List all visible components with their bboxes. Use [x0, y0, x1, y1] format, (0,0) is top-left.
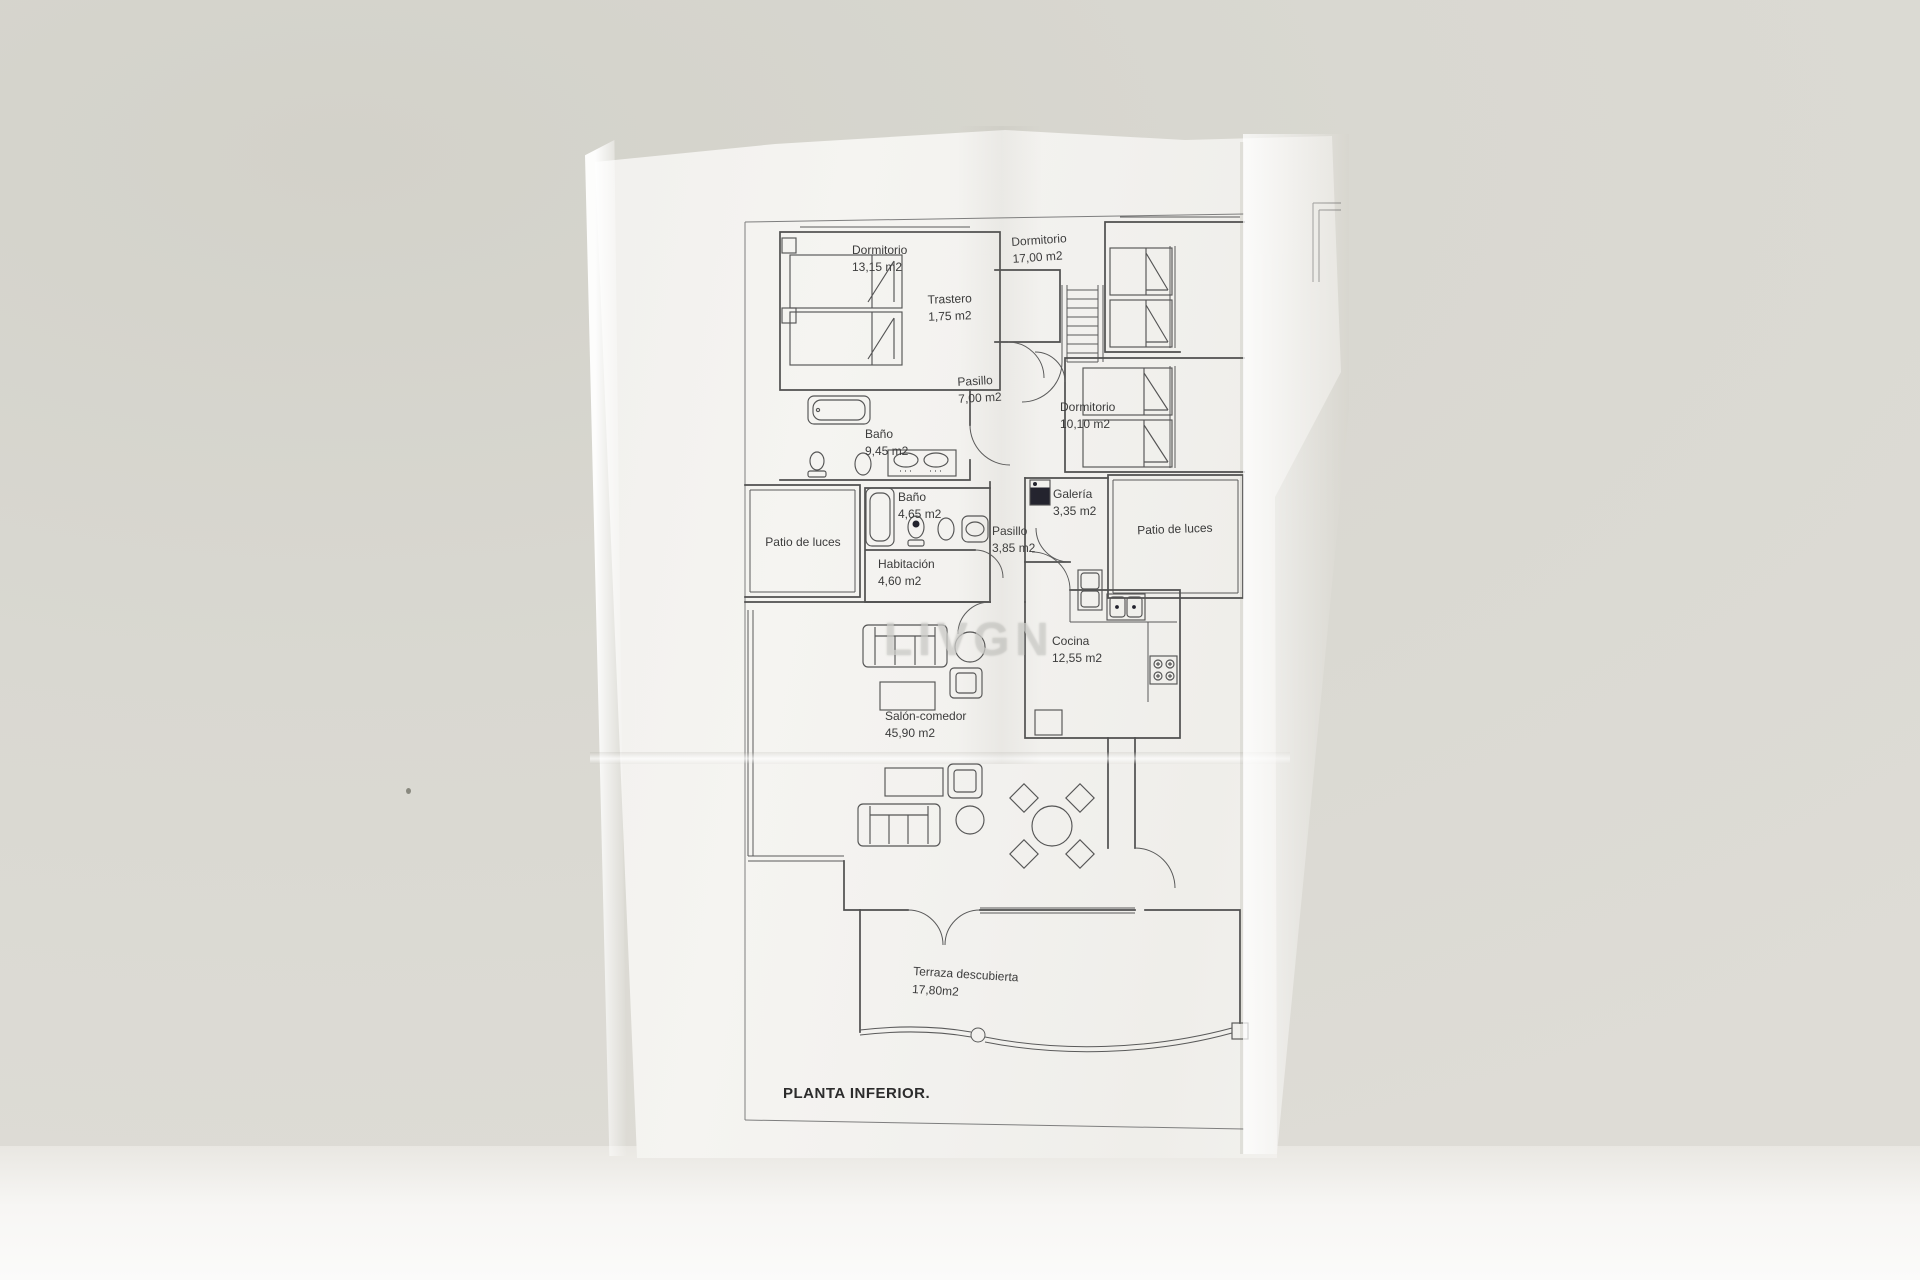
round-chair-icon	[956, 806, 984, 834]
room-label-salon: Salón-comedor 45,90 m2	[885, 709, 966, 740]
plan-footer-title: PLANTA INFERIOR.	[783, 1085, 930, 1102]
room-name: Patio de luces	[765, 535, 840, 549]
room-label-bano-465: Baño 4,65 m2	[898, 490, 942, 521]
photo-of-floor-plan: Dormitorio 13,15 m2 Dormitorio 17,00 m2 …	[0, 0, 1920, 1280]
room-label-habitacion: Habitación 4,60 m2	[878, 557, 935, 588]
dust-speck	[406, 788, 411, 794]
bidet-icon	[938, 518, 954, 540]
room-area: 45,90 m2	[885, 726, 935, 740]
chair-icon	[1066, 840, 1094, 868]
room-name: Galería	[1053, 487, 1093, 501]
armchair-icon	[948, 764, 982, 798]
room-name: Habitación	[878, 557, 935, 571]
room-name: Baño	[865, 427, 893, 441]
coffee-table-icon	[885, 768, 943, 796]
room-area: 4,60 m2	[878, 574, 922, 588]
room-area: 4,65 m2	[898, 507, 942, 521]
room-label-bano-945: Baño 9,45 m2	[865, 427, 909, 458]
nightstand-icon	[782, 308, 796, 323]
chair-icon	[1010, 840, 1038, 868]
room-name: Patio de luces	[1137, 521, 1213, 538]
nightstand-icon	[782, 238, 796, 253]
chair-icon	[1066, 784, 1094, 812]
stove-icon	[1150, 656, 1177, 684]
coffee-table-icon	[880, 682, 935, 710]
room-name: Baño	[898, 490, 926, 504]
room-area: 10,10 m2	[1060, 417, 1110, 431]
room-label-patio-left: Patio de luces	[765, 535, 840, 549]
room-area: 9,45 m2	[865, 444, 909, 458]
room-label-dormitorio-13: Dormitorio 13,15 m2	[852, 243, 908, 274]
bed-icon	[1110, 248, 1172, 295]
room-name: Dormitorio	[852, 243, 908, 257]
horizontal-fold-crease	[590, 752, 1290, 764]
room-name: Terraza descubierta	[913, 964, 1019, 984]
bedroom-13-beds	[782, 238, 902, 365]
room-label-patio-right: Patio de luces	[1137, 521, 1213, 538]
bed-icon	[1110, 300, 1172, 347]
room-name: Dormitorio	[1060, 400, 1116, 414]
center-fold-crease	[958, 126, 1042, 764]
chair-icon	[1010, 784, 1038, 812]
dining-table-icon	[1032, 806, 1072, 846]
railing-knob	[971, 1028, 985, 1042]
room-label-galeria: Galería 3,35 m2	[1053, 487, 1097, 518]
room-area: 17,80m2	[912, 982, 960, 999]
room-label-terraza: Terraza descubierta 17,80m2	[912, 964, 1019, 1002]
room-name: Salón-comedor	[885, 709, 966, 723]
room-area: 13,15 m2	[852, 260, 902, 274]
bed-icon	[790, 312, 902, 365]
room-area: 3,35 m2	[1053, 504, 1097, 518]
toilet-icon	[810, 452, 824, 470]
bedroom-17-beds	[1110, 248, 1172, 347]
living-room-furniture-lower	[858, 764, 1094, 868]
